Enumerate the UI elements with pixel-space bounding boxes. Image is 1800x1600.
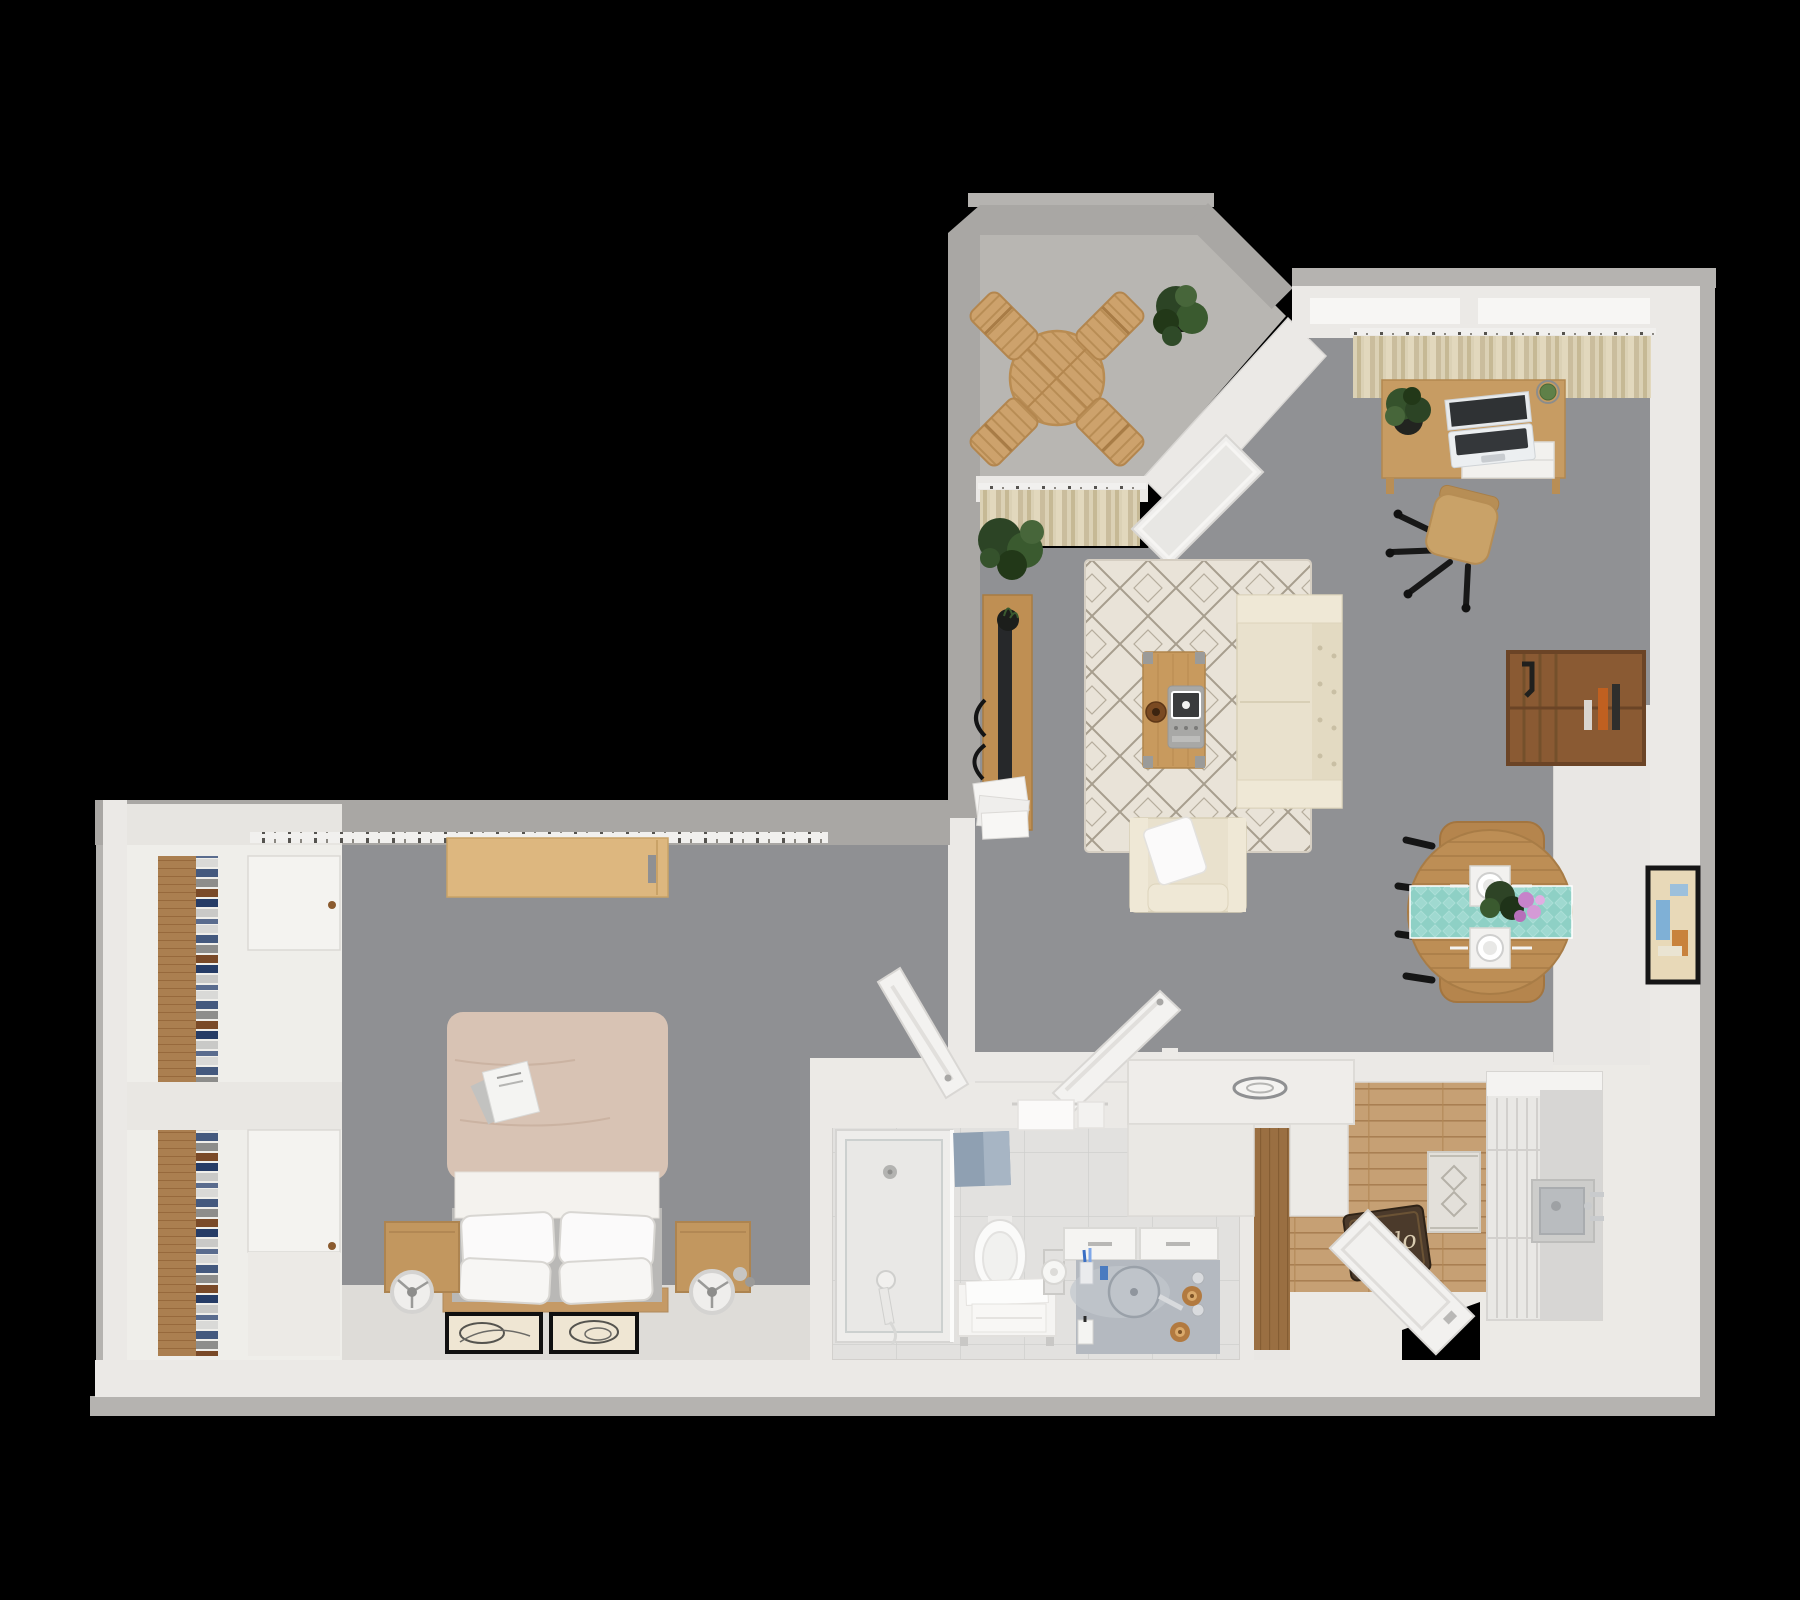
wall-bookshelf	[1508, 652, 1644, 764]
balcony-north-wall	[980, 205, 1210, 235]
double-bed	[443, 1012, 668, 1312]
bedside-lamp	[392, 1272, 432, 1312]
book	[1584, 700, 1592, 730]
floor-plan-screenshot: hello	[0, 0, 1800, 1600]
floor-plan-render: hello	[0, 0, 1800, 1600]
bookshelf-column	[158, 1130, 196, 1356]
runner-rug	[1428, 1152, 1480, 1232]
toilet-paper-holder	[1042, 1250, 1066, 1294]
sheet-fold	[455, 1172, 659, 1218]
faucet-handle	[1192, 1272, 1204, 1284]
cactus	[1540, 384, 1556, 400]
window	[1478, 298, 1654, 324]
tv-screen-edge	[998, 618, 1012, 804]
desk	[1382, 380, 1565, 494]
west-outer-wall	[103, 800, 127, 1360]
wall-art-frame	[1648, 868, 1698, 982]
book-stack	[196, 856, 218, 1082]
toothbrush-cup	[1080, 1262, 1093, 1284]
window	[1310, 298, 1460, 324]
floor-art-frame	[447, 1314, 541, 1352]
armchair	[1130, 816, 1246, 912]
curtain-rod	[978, 483, 1146, 489]
tall-cabinet-unit	[1487, 1072, 1604, 1320]
counter-peninsula	[1128, 1060, 1354, 1216]
wardrobe-door	[248, 1130, 340, 1252]
closet-divider	[127, 1082, 342, 1130]
hall-wood-cabinet	[1254, 1118, 1290, 1360]
south-outer-wall	[95, 1360, 1700, 1397]
kitchen-sink	[1532, 1180, 1604, 1242]
towel	[1018, 1100, 1074, 1130]
sofa-arm	[1237, 595, 1342, 623]
east-outer-wall	[1650, 286, 1700, 1397]
bedroom-right-wall	[948, 818, 975, 1062]
towel-bench	[958, 1279, 1056, 1346]
counter-cabinet	[1290, 1124, 1348, 1216]
floor-art-frame	[551, 1314, 637, 1352]
faucet-handle	[1590, 1216, 1604, 1221]
wardrobe-knob	[328, 901, 336, 909]
bookshelf-column	[158, 856, 196, 1082]
book-stack	[196, 1130, 218, 1356]
wall-desk	[447, 838, 668, 897]
towel	[1078, 1102, 1104, 1128]
folded-towel	[966, 1279, 1049, 1306]
sofa-back-cushions	[1312, 595, 1342, 808]
wardrobe-body	[248, 1252, 340, 1356]
balcony-west-wall	[948, 205, 980, 818]
faucet-handle	[1590, 1192, 1604, 1197]
bathroom-west-wall	[810, 1090, 832, 1360]
book	[1598, 688, 1608, 730]
soap-dispenser	[1078, 1320, 1093, 1344]
sofa-arm	[1237, 780, 1342, 808]
counter-cabinet	[1128, 1124, 1254, 1216]
coffee-table	[1143, 652, 1205, 768]
closet-units	[127, 804, 342, 1360]
walk-in-shower	[836, 1130, 952, 1344]
door-handle	[945, 1075, 952, 1082]
sectional-sofa	[1237, 595, 1342, 808]
curtain-rod	[1350, 328, 1656, 335]
book	[1612, 684, 1620, 730]
wardrobe-knob	[328, 1242, 336, 1250]
wardrobe-door	[248, 856, 340, 950]
toothpaste	[1100, 1266, 1108, 1280]
counter-sink-ring	[1234, 1078, 1286, 1098]
vanity	[1064, 1228, 1220, 1354]
faucet-spout	[1584, 1202, 1592, 1210]
door-handle	[1157, 999, 1164, 1006]
bath-mat	[953, 1131, 1011, 1187]
towel-rail	[1012, 1100, 1108, 1130]
